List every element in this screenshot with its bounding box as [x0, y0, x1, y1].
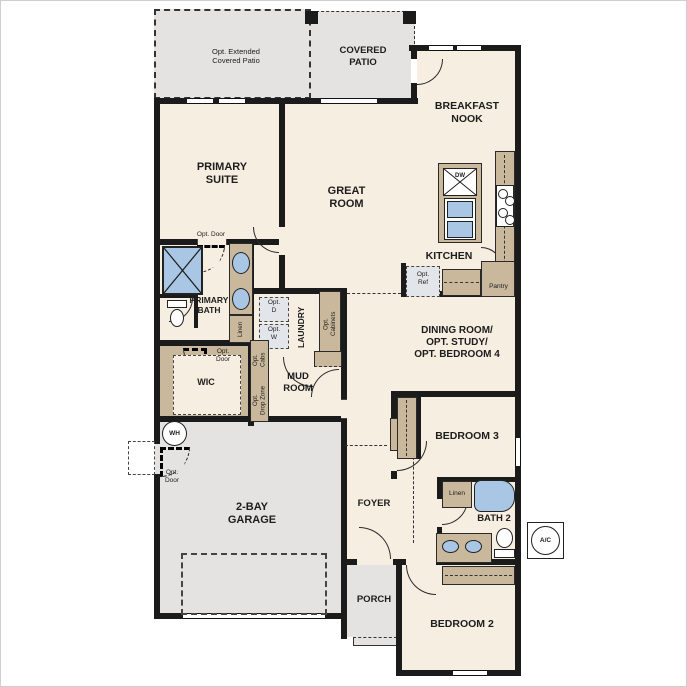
- covered-patio-label: COVERED PATIO: [315, 45, 411, 68]
- gap-front-door: [357, 559, 393, 565]
- toilet-bowl-bath2: [496, 528, 513, 548]
- wh-label: WH: [169, 430, 180, 438]
- wall-suite-right: [279, 104, 285, 227]
- sink-icon-kitchen-1: [447, 201, 473, 218]
- pantry-block: [481, 261, 515, 297]
- wall-left-main: [154, 98, 160, 619]
- opt-cabinets-label: Opt. Cabinets: [320, 293, 340, 355]
- patio-post-left: [305, 11, 318, 24]
- air-conditioner-icon: A/C: [531, 526, 560, 555]
- patio-post-right: [403, 11, 416, 24]
- porch-step: [353, 637, 397, 646]
- wic-label: WIC: [183, 377, 229, 388]
- shower-icon: [162, 246, 203, 295]
- ac-unit-box: A/C: [527, 522, 564, 559]
- window-nook-2: [457, 45, 481, 51]
- linen-primary-label: Linen: [230, 314, 252, 344]
- slider-great-room: [321, 98, 377, 104]
- opt-door-exterior-box: [128, 441, 155, 475]
- dw-label: DW: [449, 173, 471, 180]
- mud-room-label: MUD ROOM: [267, 371, 329, 394]
- sink-icon-bath2-1: [442, 540, 459, 553]
- opt-extended-patio-label: Opt. Extended Covered Patio: [186, 47, 286, 65]
- laundry-label: LAUNDRY: [293, 297, 309, 357]
- pantry-label: Pantry: [483, 283, 514, 291]
- dining-label: DINING ROOM/ OPT. STUDY/ OPT. BEDROOM 4: [400, 325, 514, 362]
- opt-door-garage-label: Opt. Door: [154, 469, 190, 485]
- kitchen-label: KITCHEN: [408, 250, 490, 263]
- opt-door-suite-label: Opt. Door: [189, 231, 233, 239]
- wall-nook-left-b: [411, 83, 417, 104]
- window-bedroom3: [515, 438, 521, 466]
- bedroom2-label: BEDROOM 2: [417, 618, 507, 631]
- opt-w-label: Opt. W: [260, 326, 288, 342]
- opt-drop-zone-label: Opt. Drop Zone: [251, 377, 268, 423]
- toilet-tank-bath2: [494, 549, 515, 558]
- garage-label: 2-BAY GARAGE: [199, 501, 305, 528]
- wall-suite-right-stub: [279, 255, 285, 291]
- wall-porch-left: [341, 559, 347, 639]
- opt-cabs-label: Opt. Cabs: [251, 341, 268, 379]
- sink-icon-primary-1: [232, 252, 250, 274]
- garage-door-outline: [181, 553, 327, 615]
- bedroom3-closet: [397, 397, 417, 459]
- foyer-label: FOYER: [350, 498, 398, 510]
- window-suite-1: [187, 98, 213, 104]
- bath2-label: BATH 2: [469, 513, 519, 525]
- window-nook-1: [429, 45, 453, 51]
- window-suite-2: [219, 98, 245, 104]
- bedroom3-label: BEDROOM 3: [422, 430, 512, 443]
- bedroom2-closet-dash: [445, 575, 512, 576]
- window-bedroom2: [453, 670, 487, 676]
- wall-bed2-left: [396, 559, 402, 676]
- wall-nook-left-a: [411, 45, 417, 59]
- wall-right-main: [515, 45, 521, 676]
- sink-icon-bath2-2: [465, 540, 482, 553]
- sink-icon-kitchen-2: [447, 221, 473, 238]
- cooktop-icon: [496, 185, 514, 227]
- gap-mud-foyer: [341, 399, 347, 419]
- gap-suite-door: [279, 227, 285, 255]
- primary-suite-label: PRIMARY SUITE: [172, 161, 272, 188]
- opt-ref-label: Opt. Ref: [407, 271, 439, 287]
- passage-great-dining: [347, 293, 401, 294]
- floor-plan: WH A/C Opt. Extended Covered Patio COVER…: [0, 0, 687, 687]
- porch-label: PORCH: [351, 594, 397, 606]
- opt-door-wic-label: Opt. Door: [204, 348, 242, 364]
- opt-d-label: Opt. D: [260, 299, 288, 315]
- ac-label: A/C: [540, 537, 551, 545]
- great-room-label: GREAT ROOM: [304, 185, 389, 212]
- lower-counter-dash: [444, 282, 479, 283]
- linen-bath2-label: Linen: [443, 490, 471, 498]
- foyer-break-line: [345, 445, 387, 446]
- bedroom3-closet-dash: [406, 400, 407, 456]
- tub-icon: [474, 480, 515, 512]
- breakfast-nook-label: BREAKFAST NOOK: [421, 100, 513, 126]
- water-heater-icon: WH: [162, 421, 187, 446]
- primary-bath-label: PRIMARY BATH: [181, 295, 237, 316]
